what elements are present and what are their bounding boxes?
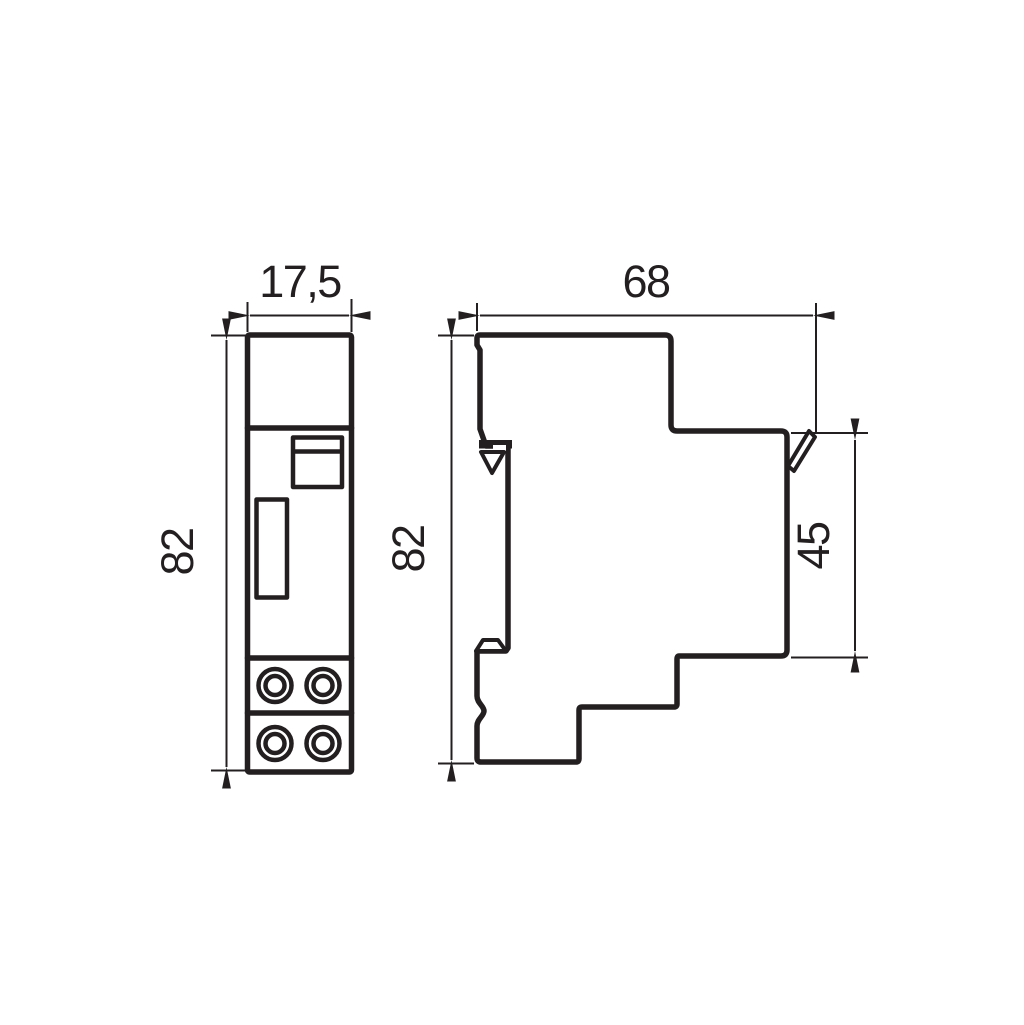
rail-section-dimension-label: 45: [788, 522, 839, 570]
din-rail-latch: [788, 431, 815, 471]
hook-chevron: [481, 452, 504, 473]
rail-section-dimension: 45: [788, 433, 868, 658]
side-depth-dimension-label: 68: [622, 256, 670, 307]
front-panel-lower-hook: [476, 640, 506, 651]
switch-button-outline: [293, 438, 342, 488]
front-housing-outline: [248, 335, 352, 772]
din-module-dimension-drawing: 17,5 82: [0, 0, 1024, 1025]
terminal-screw-inner: [314, 676, 333, 695]
terminal-screw-inner: [314, 734, 333, 753]
front-label-window: [257, 500, 288, 598]
side-height-dimension-label: 82: [383, 525, 434, 572]
terminal-screw-inner: [266, 734, 285, 753]
front-height-dimension-label: 82: [152, 528, 203, 575]
technical-drawing-page: 17,5 82: [0, 0, 1024, 1025]
front-width-dimension: 17,5: [248, 256, 352, 332]
terminal-screw-inner: [266, 676, 285, 695]
side-height-dimension: 82: [383, 336, 474, 764]
side-view: [476, 335, 815, 762]
front-view: [248, 335, 352, 772]
front-width-dimension-label: 17,5: [259, 256, 341, 307]
front-height-dimension: 82: [152, 336, 246, 771]
front-switch-button: [293, 438, 342, 488]
side-depth-dimension: 68: [477, 256, 816, 433]
side-housing-profile: [477, 335, 787, 762]
